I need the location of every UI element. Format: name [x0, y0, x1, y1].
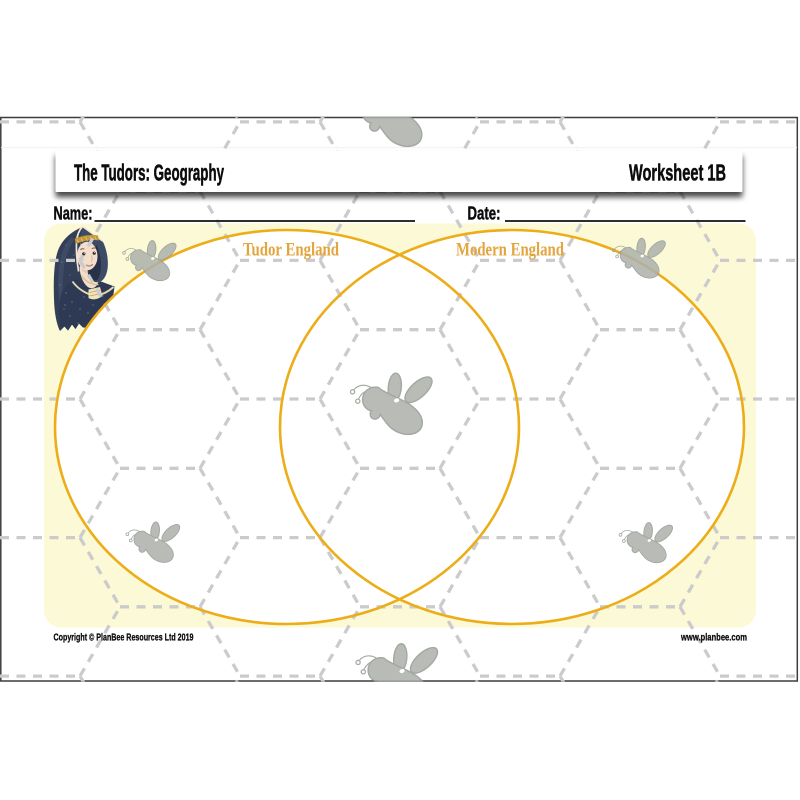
svg-text:Tudor England: Tudor England	[243, 240, 339, 261]
svg-text:Modern England: Modern England	[456, 240, 564, 261]
svg-text:www.planbee.com: www.planbee.com	[680, 632, 747, 644]
svg-text:Name:: Name:	[54, 204, 93, 224]
svg-text:Copyright © PlanBee Resources: Copyright © PlanBee Resources Ltd 2019	[54, 632, 194, 644]
svg-text:Date:: Date:	[468, 204, 501, 224]
svg-text:The Tudors: Geography: The Tudors: Geography	[74, 160, 224, 186]
svg-text:Worksheet 1B: Worksheet 1B	[629, 160, 726, 186]
